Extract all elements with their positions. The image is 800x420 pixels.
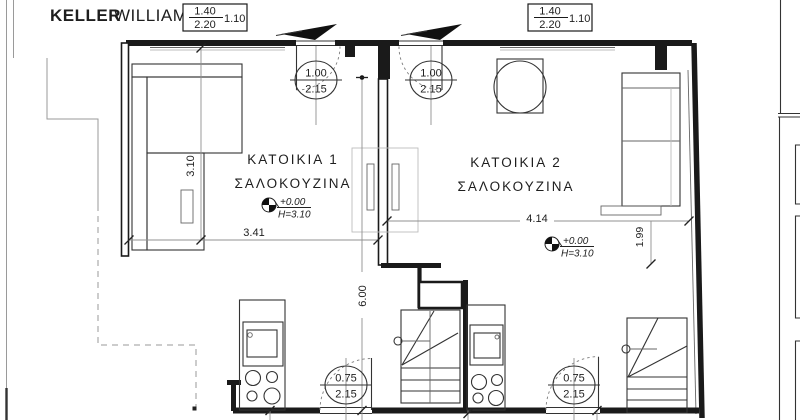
- boundary-step-upper: [47, 58, 98, 205]
- faucet-icon: [248, 333, 253, 338]
- header-box-1-adjacent: 1.10: [224, 13, 245, 25]
- sofa-arm: [132, 77, 147, 250]
- level-symbol-quadrant: [545, 237, 552, 244]
- faucet-icon: [495, 335, 499, 339]
- clear-height-value: H=3.10: [278, 210, 311, 221]
- clear-height-value: H=3.10: [561, 249, 594, 260]
- interior-walls: [379, 79, 466, 410]
- stair-direction-start: [622, 345, 630, 353]
- dim-text-apt1-depth: 3.10: [185, 155, 197, 176]
- burner-icon: [247, 391, 257, 401]
- level-value: +0.00: [563, 236, 589, 247]
- level-value: +0.00: [280, 197, 306, 208]
- header-box-2-denominator: 2.20: [539, 19, 560, 31]
- stair-landing: [419, 282, 462, 308]
- stair-outline: [401, 310, 460, 403]
- header-box-2: 1.40 2.20 1.10: [528, 4, 592, 31]
- burner-icon: [492, 375, 503, 386]
- entry-arrow-icon: [281, 24, 337, 40]
- bed: [601, 73, 680, 215]
- header-box-2-numerator: 1.40: [539, 6, 560, 18]
- sink-unit: [470, 325, 503, 365]
- adjacent-room-edge: [796, 341, 800, 420]
- dim-text-total-depth: 6.00: [357, 285, 369, 306]
- stair-outline: [627, 318, 687, 413]
- entry-pillar: [335, 40, 399, 79]
- elevation-marker-2: +0.00 H=3.10: [545, 236, 594, 260]
- room-type: ΣΑΛΟΚΟΥΖΙΝΑ: [458, 179, 575, 194]
- party-wall: [379, 79, 388, 265]
- door-height: 2.15: [305, 84, 326, 96]
- burner-icon: [473, 393, 483, 403]
- door-height: 2.15: [563, 389, 584, 401]
- door-width: 1.00: [420, 68, 441, 80]
- entry-arrow-icon: [406, 24, 462, 40]
- door-height: 2.15: [420, 84, 441, 96]
- page-edge-lines: [7, 0, 14, 420]
- header-box-2-adjacent: 1.10: [569, 13, 590, 25]
- radiator: [181, 190, 193, 223]
- dining-table: [494, 59, 546, 113]
- boundary-end-marker: [193, 407, 197, 411]
- header-box-1: 1.40 2.20 1.10: [183, 4, 247, 31]
- adjacent-room-edge: [796, 216, 800, 318]
- dim-text-apt2-width: 4.14: [526, 213, 547, 225]
- wall-step: [655, 46, 667, 70]
- level-symbol-quadrant: [269, 205, 276, 212]
- door-size-label-rear-1: 0.75 2.15: [320, 366, 372, 404]
- apartment-name: ΚΑΤΟΙΚΙΑ 2: [470, 155, 562, 170]
- round-table: [494, 61, 546, 113]
- dim-text-apt1-width: 3.41: [243, 227, 264, 239]
- brand-logo: KELLER WILLIAMS: [50, 6, 199, 25]
- stair-diagonal: [628, 346, 687, 377]
- room-label-apt2: ΚΑΤΟΙΚΙΑ 2 ΣΑΛΟΚΟΥΖΙΝΑ: [458, 155, 575, 194]
- left-wall: [122, 43, 129, 256]
- counter: [240, 300, 286, 410]
- sink-basin: [247, 330, 277, 357]
- sink-basin: [474, 333, 500, 358]
- stair-diagonal: [628, 318, 658, 377]
- adjacent-building: [778, 0, 800, 420]
- door-width: 0.75: [335, 373, 356, 385]
- level-symbol-quadrant: [262, 198, 269, 205]
- elevation-marker-1: +0.00 H=3.10: [262, 197, 311, 221]
- burner-icon: [246, 371, 261, 386]
- burner-icon: [264, 388, 280, 404]
- burner-icon: [472, 375, 487, 390]
- door-size-label-entry-2: 1.00 2.15: [405, 61, 457, 99]
- sofa-back: [132, 64, 242, 77]
- adjacent-room-edge: [796, 145, 800, 204]
- staircase-2: [622, 318, 687, 413]
- niche-slot: [392, 164, 399, 210]
- room-label-apt1: ΚΑΤΟΙΚΙΑ 1 ΣΑΛΟΚΟΥΖΙΝΑ: [235, 152, 352, 191]
- entry-arrows: [276, 24, 462, 40]
- door-height: 2.15: [335, 389, 356, 401]
- floor-plan-page: KELLER WILLIAMS 1.40 2.20 1.10 1.40 2.20…: [0, 0, 800, 420]
- level-symbol-quadrant: [552, 244, 559, 251]
- logo-text-bold: KELLER: [50, 6, 121, 25]
- door-size-label-entry-1: 1.00 2.15: [290, 61, 342, 99]
- dim-text-apt2-depth: 1.99: [634, 227, 646, 248]
- burner-icon: [489, 391, 504, 406]
- stair-diagonal: [402, 311, 434, 365]
- radiator-body: [181, 190, 193, 223]
- room-type: ΣΑΛΟΚΟΥΖΙΝΑ: [235, 176, 352, 191]
- door-width: 1.00: [305, 68, 326, 80]
- header-box-1-denominator: 2.20: [194, 19, 215, 31]
- sofa-seat: [147, 77, 242, 153]
- door-size-label-rear-2: 0.75 2.15: [548, 366, 600, 404]
- exterior-walls: [122, 40, 703, 418]
- header-box-1-numerator: 1.40: [194, 6, 215, 18]
- kitchen-unit-1: [240, 300, 286, 410]
- apartment-name: ΚΑΤΟΙΚΙΑ 1: [247, 152, 339, 167]
- burner-icon: [267, 372, 278, 383]
- door-width: 0.75: [563, 373, 584, 385]
- bed-foot-bench: [601, 206, 661, 215]
- kitchen-unit-2: [467, 305, 505, 410]
- niche-slot: [367, 164, 374, 210]
- staircase-1: [394, 310, 460, 403]
- floor-plan-canvas: KELLER WILLIAMS 1.40 2.20 1.10 1.40 2.20…: [0, 0, 800, 420]
